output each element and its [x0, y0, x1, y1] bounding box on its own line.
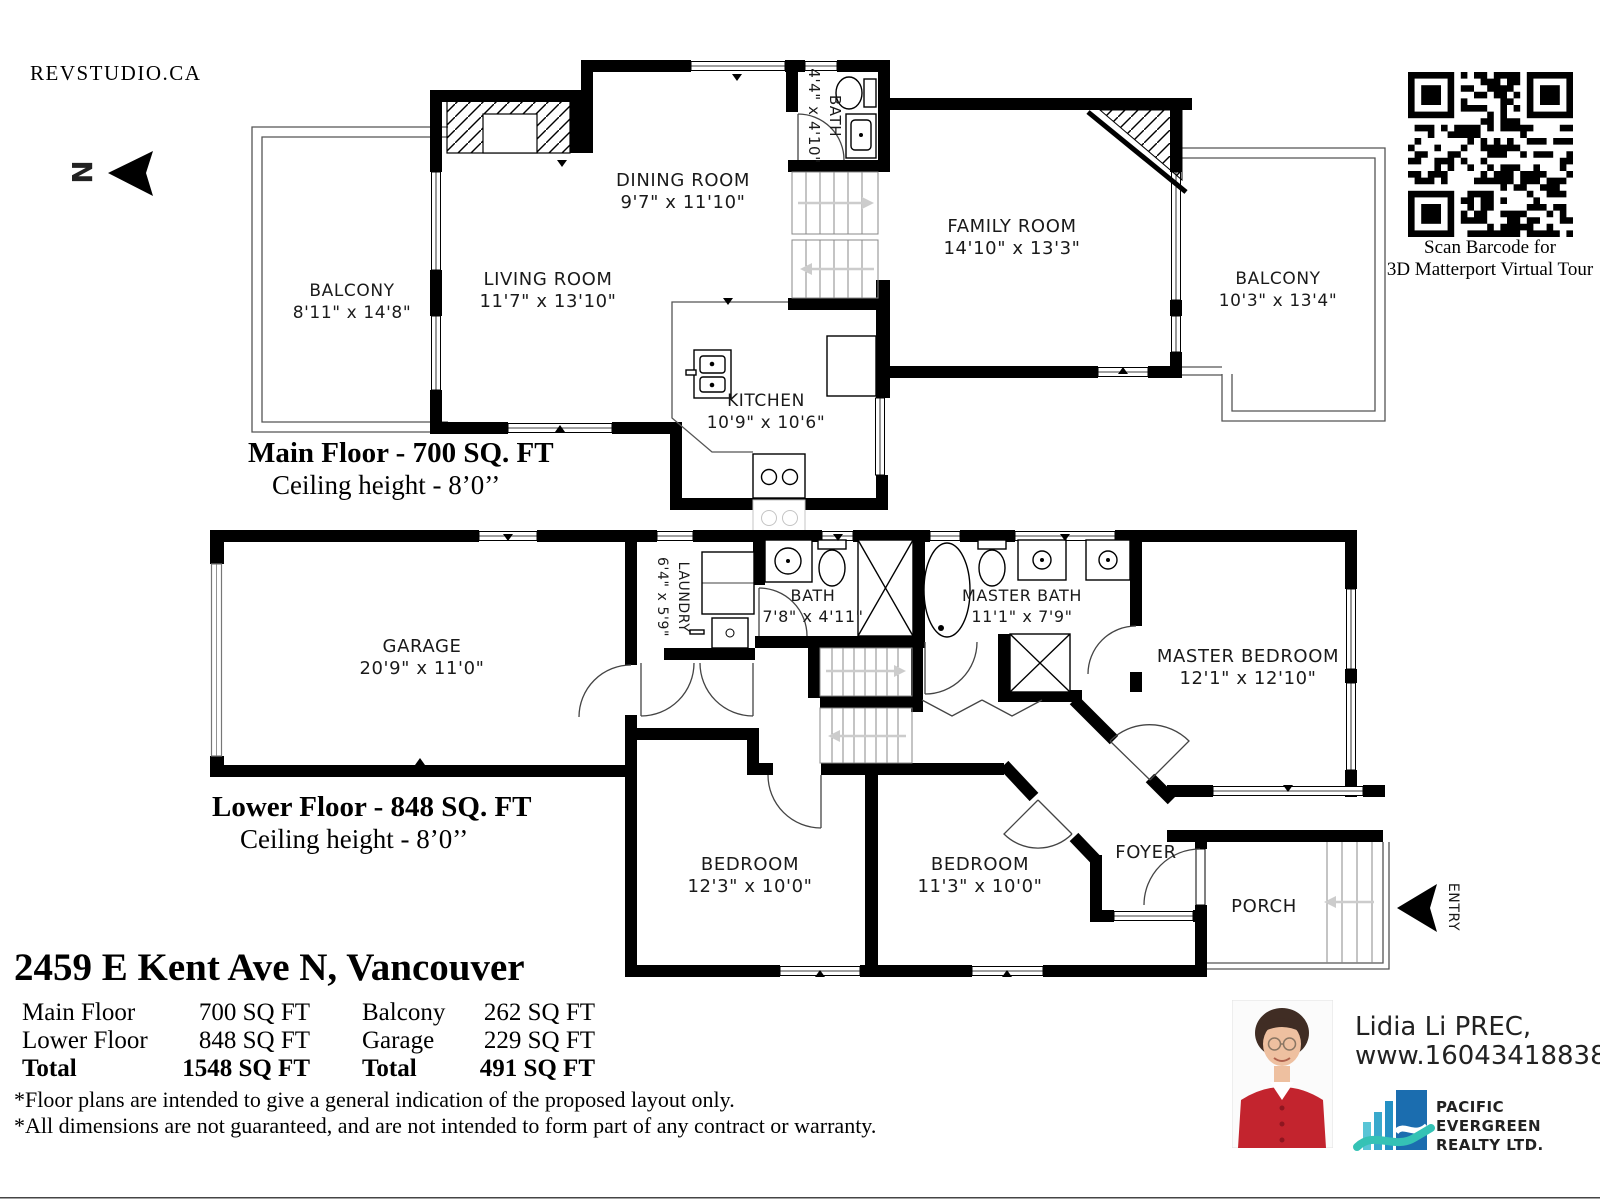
north-arrow: N — [66, 151, 153, 196]
brokerage-logo-icon — [1357, 1090, 1431, 1150]
qr-code-icon — [1408, 72, 1573, 237]
floor-plan-canvas: REVSTUDIO.CA N Scan Barcode for 3D Matte… — [0, 0, 1600, 1200]
svg-text:MASTER BEDROOM: MASTER BEDROOM — [1157, 646, 1339, 667]
room-label-master-bedroom: MASTER BEDROOM 12'1" x 12'10" — [1157, 646, 1339, 689]
svg-text:BEDROOM: BEDROOM — [931, 854, 1029, 875]
room-label-garage: GARAGE 20'9" x 11'0" — [359, 636, 484, 679]
svg-text:4'4" x 4'10": 4'4" x 4'10" — [805, 68, 823, 163]
room-label-foyer: FOYER — [1115, 842, 1176, 863]
svg-text:7'8" x 4'11": 7'8" x 4'11" — [762, 607, 863, 626]
room-label-bath-main: BATH 4'4" x 4'10" — [805, 68, 844, 163]
table-value: 700 SQ FT — [199, 999, 310, 1026]
svg-text:BATH: BATH — [791, 586, 836, 605]
stairs-main — [792, 172, 878, 298]
fireplace-family-icon — [1088, 110, 1186, 192]
svg-text:20'9" x 11'0": 20'9" x 11'0" — [359, 658, 484, 679]
closet-bifold-doors — [922, 700, 1042, 716]
table-value: 229 SQ FT — [484, 1027, 595, 1054]
agent-photo — [1232, 1000, 1333, 1148]
studio-logo-text: REVSTUDIO.CA — [30, 61, 201, 85]
address-title: 2459 E Kent Ave N, Vancouver — [14, 946, 525, 989]
header: REVSTUDIO.CA N — [30, 61, 201, 196]
table-label: Lower Floor — [22, 1027, 148, 1054]
svg-text:9'7" x 11'10": 9'7" x 11'10" — [620, 192, 745, 213]
room-label-family: FAMILY ROOM 14'10" x 13'3" — [943, 216, 1080, 259]
svg-text:GARAGE: GARAGE — [383, 636, 462, 657]
summary-block: 2459 E Kent Ave N, Vancouver Main Floor … — [0, 946, 1600, 1199]
svg-text:6'4" x 5'9": 6'4" x 5'9" — [654, 557, 670, 637]
entry-label: ENTRY — [1445, 883, 1461, 931]
brokerage-name-line3: REALTY LTD. — [1436, 1136, 1544, 1154]
entry-arrowhead-icon — [1397, 884, 1437, 932]
main-floor-plan: BALCONY 8'11" x 14'8" LIVING ROOM 11'7" … — [248, 60, 1385, 538]
floor-plan-page: REVSTUDIO.CA N Scan Barcode for 3D Matte… — [0, 0, 1600, 1200]
table-label-total: Total — [362, 1055, 417, 1082]
balcony-left-outline — [252, 127, 448, 432]
agent-name: Lidia Li PREC, — [1355, 1012, 1531, 1042]
svg-text:11'7" x 13'10": 11'7" x 13'10" — [479, 291, 616, 312]
room-label-balcony-left: BALCONY 8'11" x 14'8" — [293, 281, 412, 323]
north-label: N — [66, 160, 99, 183]
lower-floor-windows — [212, 532, 1364, 976]
room-label-living: LIVING ROOM 11'7" x 13'10" — [479, 269, 616, 312]
table-value: 848 SQ FT — [199, 1027, 310, 1054]
svg-text:11'3" x 10'0": 11'3" x 10'0" — [917, 876, 1042, 897]
room-label-balcony-right: BALCONY 10'3" x 13'4" — [1219, 269, 1338, 311]
svg-text:BALCONY: BALCONY — [1235, 269, 1320, 289]
fridge — [827, 336, 876, 396]
svg-text:FAMILY ROOM: FAMILY ROOM — [947, 216, 1076, 237]
svg-text:14'10" x 13'3": 14'10" x 13'3" — [943, 238, 1080, 259]
lower-floor-title: Lower Floor - 848 SQ. FT — [212, 791, 532, 823]
brokerage-logo: PACIFIC EVERGREEN REALTY LTD. — [1357, 1090, 1544, 1154]
lower-floor-plan: ENTRY GARAGE 20'9" x 11'0" LAUNDRY 6'4" … — [210, 530, 1461, 977]
table-label-total: Total — [22, 1055, 77, 1082]
svg-text:BATH: BATH — [826, 95, 844, 137]
table-value-total: 491 SQ FT — [480, 1055, 596, 1082]
diagonal-walls — [1004, 700, 1172, 860]
svg-text:BEDROOM: BEDROOM — [701, 854, 799, 875]
main-floor-ceiling: Ceiling height - 8’0’’ — [272, 470, 500, 500]
room-label-bedroom2: BEDROOM 11'3" x 10'0" — [917, 854, 1042, 897]
room-label-laundry: LAUNDRY 6'4" x 5'9" — [654, 557, 691, 637]
disclaimer-line2: *All dimensions are not guaranteed, and … — [14, 1113, 876, 1138]
main-floor-title: Main Floor - 700 SQ. FT — [248, 437, 554, 469]
svg-text:DINING ROOM: DINING ROOM — [616, 170, 750, 191]
room-label-master-bath: MASTER BATH 11'1" x 7'9" — [962, 586, 1082, 626]
svg-text:11'1" x 7'9": 11'1" x 7'9" — [971, 607, 1072, 626]
svg-text:BALCONY: BALCONY — [309, 281, 394, 301]
disclaimer-line1: *Floor plans are intended to give a gene… — [14, 1087, 735, 1112]
page-bottom-rule — [0, 1197, 1600, 1199]
table-value: 262 SQ FT — [484, 999, 595, 1026]
svg-text:10'9" x 10'6": 10'9" x 10'6" — [707, 413, 826, 433]
entry-arrow: ENTRY — [1397, 883, 1461, 932]
table-label: Garage — [362, 1027, 434, 1054]
svg-text:12'1" x 12'10": 12'1" x 12'10" — [1179, 668, 1316, 689]
svg-text:MASTER BATH: MASTER BATH — [962, 586, 1082, 605]
table-label: Main Floor — [22, 999, 136, 1026]
svg-text:KITCHEN: KITCHEN — [727, 391, 805, 411]
room-label-porch: PORCH — [1231, 896, 1297, 917]
brokerage-name-line2: EVERGREEN — [1436, 1117, 1541, 1135]
north-arrowhead-icon — [108, 151, 153, 196]
qr-block: Scan Barcode for 3D Matterport Virtual T… — [1387, 72, 1594, 280]
area-table: Main Floor 700 SQ FT Balcony 262 SQ FT L… — [22, 999, 595, 1082]
room-label-dining: DINING ROOM 9'7" x 11'10" — [616, 170, 750, 213]
svg-text:12'3" x 10'0": 12'3" x 10'0" — [687, 876, 812, 897]
qr-caption-line2: 3D Matterport Virtual Tour — [1387, 259, 1594, 280]
agent-website: www.16043418838.com — [1355, 1041, 1600, 1071]
table-label: Balcony — [362, 999, 446, 1026]
qr-caption-line1: Scan Barcode for — [1424, 237, 1557, 258]
lower-floor-ceiling: Ceiling height - 8’0’’ — [240, 824, 468, 854]
svg-text:10'3" x 13'4": 10'3" x 13'4" — [1219, 291, 1338, 311]
room-label-bedroom1: BEDROOM 12'3" x 10'0" — [687, 854, 812, 897]
svg-text:8'11" x 14'8": 8'11" x 14'8" — [293, 303, 412, 323]
laundry-fixtures — [690, 552, 754, 648]
fireplace-living-icon — [447, 99, 570, 153]
table-value-total: 1548 SQ FT — [182, 1055, 310, 1082]
svg-text:LAUNDRY: LAUNDRY — [675, 562, 691, 633]
brokerage-name-line1: PACIFIC — [1436, 1098, 1504, 1116]
svg-text:LIVING ROOM: LIVING ROOM — [483, 269, 612, 290]
